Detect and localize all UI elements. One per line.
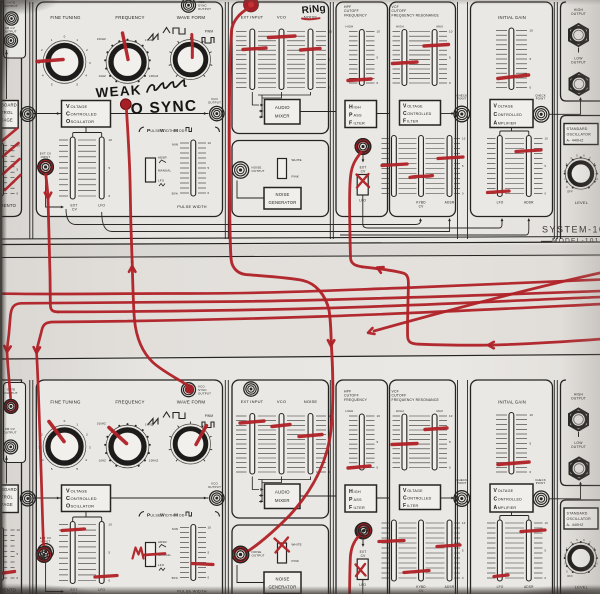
svg-text:SCILLATOR: SCILLATOR xyxy=(71,119,95,124)
svg-text:SCILLATOR: SCILLATOR xyxy=(71,504,95,509)
svg-text:POINT: POINT xyxy=(536,481,546,485)
svg-text:PWM: PWM xyxy=(205,30,214,34)
svg-text:POINT: POINT xyxy=(457,481,467,485)
svg-text:INITIAL GAIN: INITIAL GAIN xyxy=(498,15,526,20)
svg-text:WHITE: WHITE xyxy=(292,543,302,547)
svg-text:MAX: MAX xyxy=(437,409,444,413)
svg-text:PULSE WIDTH: PULSE WIDTH xyxy=(177,204,207,209)
svg-text:5: 5 xyxy=(545,164,547,168)
svg-text:ONTROLLED: ONTROLLED xyxy=(71,112,97,117)
svg-text:0: 0 xyxy=(64,419,66,423)
svg-text:ADSR: ADSR xyxy=(445,201,455,205)
svg-text:NOISE: NOISE xyxy=(275,577,289,582)
svg-text:2: 2 xyxy=(41,433,43,437)
svg-text:HIGH: HIGH xyxy=(396,25,404,29)
svg-text:FREQUENCY: FREQUENCY xyxy=(344,13,368,17)
svg-text:0: 0 xyxy=(109,194,111,198)
svg-text:4: 4 xyxy=(85,74,87,78)
svg-text:CV: CV xyxy=(419,205,425,209)
svg-text:NOISE: NOISE xyxy=(275,192,289,197)
svg-text:OLTAGE: OLTAGE xyxy=(498,489,514,493)
svg-text:C: C xyxy=(66,112,70,118)
svg-text:0: 0 xyxy=(109,579,111,583)
svg-text:ADSR: ADSR xyxy=(158,540,167,544)
svg-text:H: H xyxy=(349,105,353,111)
svg-text:5: 5 xyxy=(449,55,451,59)
svg-text:OUTPUT: OUTPUT xyxy=(208,101,221,105)
svg-text:5: 5 xyxy=(17,552,19,556)
svg-text:5: 5 xyxy=(208,551,210,555)
svg-text:2: 2 xyxy=(41,48,43,52)
svg-text:5: 5 xyxy=(17,168,19,172)
svg-text:5: 5 xyxy=(51,82,53,86)
svg-text:LFO: LFO xyxy=(158,563,165,567)
svg-text:10: 10 xyxy=(208,526,212,530)
svg-text:HIGH: HIGH xyxy=(396,409,404,413)
svg-text:FREQUENCY: FREQUENCY xyxy=(115,15,144,20)
svg-text:EXT INPUT: EXT INPUT xyxy=(241,15,264,20)
svg-text:10: 10 xyxy=(109,523,113,527)
svg-text:4: 4 xyxy=(42,74,44,78)
svg-text:F: F xyxy=(349,121,352,127)
svg-text:4: 4 xyxy=(42,458,44,462)
svg-text:P: P xyxy=(349,113,353,119)
svg-text:ASS: ASS xyxy=(354,498,362,502)
svg-text:CV: CV xyxy=(361,554,367,558)
svg-text:ONTROLLED: ONTROLLED xyxy=(498,498,522,502)
svg-text:FREQUENCY RESONANCE: FREQUENCY RESONANCE xyxy=(392,13,440,17)
svg-text:10KHZ: 10KHZ xyxy=(149,74,159,78)
svg-text:CV: CV xyxy=(72,208,78,212)
svg-text:10: 10 xyxy=(449,30,453,34)
svg-text:INPUT: INPUT xyxy=(41,155,51,159)
svg-text:OLTAGE: OLTAGE xyxy=(71,104,88,109)
svg-text:0: 0 xyxy=(530,470,532,474)
svg-text:5: 5 xyxy=(377,55,379,59)
svg-text:HIGH: HIGH xyxy=(346,25,354,29)
svg-text:5: 5 xyxy=(109,166,111,170)
svg-text:0: 0 xyxy=(545,576,547,580)
svg-text:C: C xyxy=(66,496,70,502)
svg-text:INITIAL GAIN: INITIAL GAIN xyxy=(498,400,526,405)
svg-text:V: V xyxy=(66,489,70,495)
svg-text:50%: 50% xyxy=(172,576,179,580)
svg-text:5: 5 xyxy=(109,551,111,555)
svg-text:WAVE FORM: WAVE FORM xyxy=(177,400,206,405)
svg-text:5: 5 xyxy=(377,440,379,444)
svg-text:ONTROLLED: ONTROLLED xyxy=(71,496,97,501)
svg-text:5: 5 xyxy=(530,57,532,61)
svg-text:VCO: VCO xyxy=(277,399,286,404)
svg-text:OUTPUT: OUTPUT xyxy=(198,392,211,396)
svg-text:WEAK: WEAK xyxy=(95,82,142,100)
svg-text:GENERATOR: GENERATOR xyxy=(269,200,297,205)
svg-text:PINK: PINK xyxy=(292,175,300,179)
svg-text:LFO: LFO xyxy=(158,179,165,183)
svg-text:VCO: VCO xyxy=(277,15,286,20)
svg-text:PWM: PWM xyxy=(205,414,214,418)
svg-text:3: 3 xyxy=(89,61,91,65)
svg-text:POINT: POINT xyxy=(457,97,467,101)
svg-text:HIGH: HIGH xyxy=(346,409,354,413)
svg-text:F: F xyxy=(403,119,406,125)
svg-text:10: 10 xyxy=(545,137,549,141)
svg-text:10: 10 xyxy=(462,521,466,525)
svg-text:F: F xyxy=(349,505,352,511)
svg-text:MIXER: MIXER xyxy=(275,498,290,503)
svg-text:OLTAGE: OLTAGE xyxy=(71,489,88,494)
svg-text:OD: OD xyxy=(179,129,185,133)
svg-text:0: 0 xyxy=(377,81,379,85)
svg-text:10: 10 xyxy=(545,521,549,525)
svg-text:FREQUENCY RESONANCE: FREQUENCY RESONANCE xyxy=(392,398,440,402)
svg-text:WAVE FORM: WAVE FORM xyxy=(177,15,206,20)
svg-text:OLTAGE: OLTAGE xyxy=(407,489,423,493)
svg-text:OD: OD xyxy=(179,514,185,518)
svg-text:MPLIFIER: MPLIFIER xyxy=(498,122,517,126)
svg-text:NOISE: NOISE xyxy=(304,399,318,404)
svg-text:0: 0 xyxy=(64,35,66,39)
svg-text:5: 5 xyxy=(545,549,547,553)
svg-text:ILTER: ILTER xyxy=(354,122,366,126)
svg-text:5: 5 xyxy=(51,467,53,471)
svg-text:LFO: LFO xyxy=(98,204,105,208)
svg-text:FINE TUNING: FINE TUNING xyxy=(50,15,81,20)
svg-text:5: 5 xyxy=(449,440,451,444)
svg-text:FREQUENCY: FREQUENCY xyxy=(344,398,368,402)
svg-text:0: 0 xyxy=(449,466,451,470)
svg-text:1: 1 xyxy=(76,423,78,427)
svg-text:OLTAGE: OLTAGE xyxy=(407,105,423,109)
svg-text:OUTPUT: OUTPUT xyxy=(252,169,265,173)
svg-text:5: 5 xyxy=(462,164,464,168)
svg-text:10KHZ: 10KHZ xyxy=(149,459,159,463)
svg-text:P: P xyxy=(349,497,353,503)
svg-text:IDTH: IDTH xyxy=(165,514,174,518)
svg-text:ILTER: ILTER xyxy=(407,504,418,508)
svg-text:0: 0 xyxy=(462,576,464,580)
svg-text:ADSR: ADSR xyxy=(158,156,167,160)
svg-text:M: M xyxy=(174,513,178,519)
svg-text:LFO: LFO xyxy=(497,201,504,205)
svg-text:V: V xyxy=(66,104,70,110)
svg-text:ASS: ASS xyxy=(354,114,362,118)
svg-text:10: 10 xyxy=(449,414,453,418)
svg-text:5: 5 xyxy=(208,166,210,170)
svg-text:OUTPUT: OUTPUT xyxy=(252,554,265,558)
svg-text:10: 10 xyxy=(530,29,534,33)
svg-text:0: 0 xyxy=(17,576,19,580)
svg-text:MIXER: MIXER xyxy=(275,114,290,119)
svg-text:0: 0 xyxy=(462,192,464,196)
svg-text:2: 2 xyxy=(86,433,88,437)
svg-text:M: M xyxy=(174,128,178,134)
svg-text:EXT INPUT: EXT INPUT xyxy=(241,399,264,404)
svg-text:10: 10 xyxy=(462,137,466,141)
svg-text:5: 5 xyxy=(76,467,78,471)
svg-text:H: H xyxy=(349,489,353,495)
svg-text:100HZ: 100HZ xyxy=(97,422,106,426)
svg-text:MIN: MIN xyxy=(172,527,178,531)
svg-text:OUTPUT: OUTPUT xyxy=(198,7,211,11)
svg-text:0: 0 xyxy=(545,192,547,196)
svg-text:100HZ: 100HZ xyxy=(97,37,106,41)
svg-text:0: 0 xyxy=(530,86,532,90)
svg-text:10HZ: 10HZ xyxy=(99,459,107,463)
svg-text:WHITE: WHITE xyxy=(292,158,302,162)
svg-text:ONTROLLED: ONTROLLED xyxy=(498,113,522,117)
svg-text:ONTROLLED: ONTROLLED xyxy=(407,497,431,501)
svg-text:10: 10 xyxy=(530,413,534,417)
svg-text:4: 4 xyxy=(85,458,87,462)
svg-text:10: 10 xyxy=(17,528,21,532)
svg-text:5: 5 xyxy=(530,442,532,446)
svg-text:10: 10 xyxy=(109,138,113,142)
svg-text:ONTROLLED: ONTROLLED xyxy=(407,112,431,116)
svg-text:MAX: MAX xyxy=(437,25,444,29)
svg-text:0: 0 xyxy=(208,576,210,580)
svg-text:2: 2 xyxy=(86,48,88,52)
svg-text:FREQUENCY: FREQUENCY xyxy=(115,400,144,405)
svg-text:1: 1 xyxy=(51,38,53,42)
svg-text:MANUAL: MANUAL xyxy=(158,169,171,173)
svg-text:ADSR: ADSR xyxy=(524,201,534,205)
svg-text:10HZ: 10HZ xyxy=(99,74,107,78)
svg-text:ILTER: ILTER xyxy=(407,120,418,124)
svg-text:IGH: IGH xyxy=(354,490,361,494)
svg-text:OUTPUT: OUTPUT xyxy=(208,485,221,489)
svg-text:IDTH: IDTH xyxy=(165,129,174,133)
svg-text:F: F xyxy=(403,503,406,509)
svg-text:AUDIO: AUDIO xyxy=(275,490,290,495)
svg-text:FINE TUNING: FINE TUNING xyxy=(50,400,81,405)
svg-text:10: 10 xyxy=(377,414,381,418)
svg-text:CV: CV xyxy=(361,169,367,173)
svg-text:IGH: IGH xyxy=(354,106,361,110)
svg-text:0: 0 xyxy=(449,81,451,85)
svg-text:0: 0 xyxy=(377,466,379,470)
svg-text:OLTAGE: OLTAGE xyxy=(498,105,514,109)
svg-text:MPLIFIER: MPLIFIER xyxy=(498,506,517,510)
svg-text:0: 0 xyxy=(17,192,19,196)
svg-text:50%: 50% xyxy=(172,192,179,196)
svg-text:0: 0 xyxy=(208,191,210,195)
svg-text:5: 5 xyxy=(76,82,78,86)
svg-text:POINT: POINT xyxy=(536,97,546,101)
svg-text:PINK: PINK xyxy=(292,559,300,563)
svg-text:MIN: MIN xyxy=(172,143,178,147)
svg-text:10: 10 xyxy=(208,141,212,145)
svg-text:10: 10 xyxy=(377,30,381,34)
svg-text:ILTER: ILTER xyxy=(354,506,366,510)
svg-text:1: 1 xyxy=(76,38,78,42)
svg-text:AUDIO: AUDIO xyxy=(275,105,290,110)
svg-text:3: 3 xyxy=(89,446,91,450)
svg-text:5: 5 xyxy=(462,549,464,553)
svg-text:O SYNC: O SYNC xyxy=(130,98,197,118)
